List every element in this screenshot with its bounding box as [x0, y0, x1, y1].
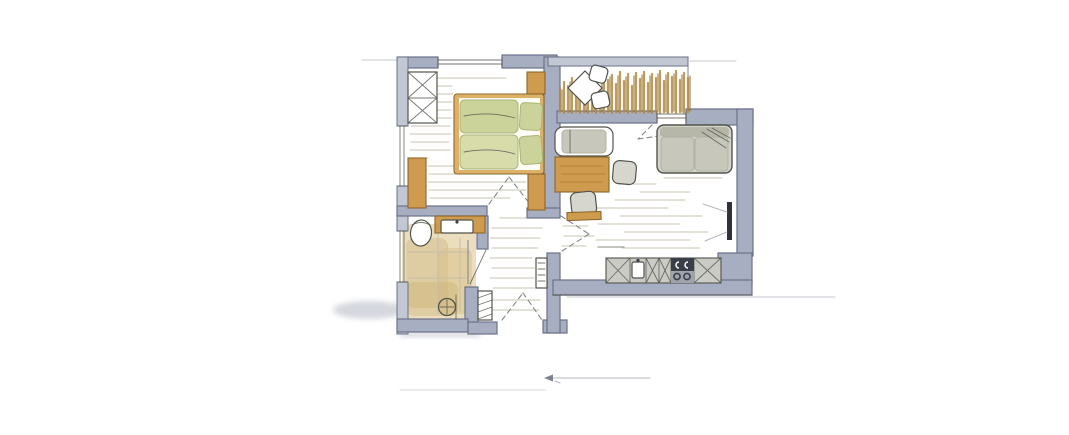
basin-faucet [455, 220, 458, 223]
entrance-door-swing [502, 293, 542, 320]
wall-shadow [333, 301, 405, 319]
sideboard [528, 174, 545, 210]
scale-arrowhead [544, 375, 553, 382]
radiator [536, 258, 547, 288]
wall-segment [718, 253, 752, 284]
wall-segment [468, 322, 497, 334]
sofa-cushion [661, 137, 694, 171]
wall-segment [397, 319, 468, 332]
sofa-cushion [695, 137, 728, 171]
faucet [636, 259, 639, 262]
bedroom-west-window [398, 126, 407, 186]
stove-panel [671, 258, 694, 271]
dresser [408, 158, 426, 208]
scale-tick [555, 381, 560, 383]
nightstand [527, 72, 545, 94]
balcony-door-swing [638, 125, 659, 139]
kitchenette [606, 258, 721, 283]
bench [567, 211, 601, 220]
tv-stand-lines [703, 204, 727, 241]
daybed-mattress [562, 130, 606, 153]
kitchen-counter [606, 258, 721, 283]
room-hallway [478, 258, 547, 320]
pillow [519, 102, 542, 130]
sink [632, 262, 644, 278]
pillow [519, 135, 543, 164]
balcony-door-window [657, 112, 686, 122]
duvet-bottom [460, 135, 518, 169]
wall-segment [737, 109, 753, 256]
room-balcony [560, 64, 690, 113]
balcony-chair [591, 90, 611, 109]
bedroom-north-window [438, 58, 502, 67]
tv [727, 202, 732, 240]
wall-segment [397, 57, 408, 126]
scale-marks [400, 375, 650, 391]
wardrobe [408, 72, 437, 123]
room-bedroom [408, 72, 545, 210]
sofa [657, 125, 732, 173]
balcony-railing [548, 57, 688, 66]
floorplan-sketch [40, 16, 1069, 419]
dining-chair [612, 160, 637, 185]
